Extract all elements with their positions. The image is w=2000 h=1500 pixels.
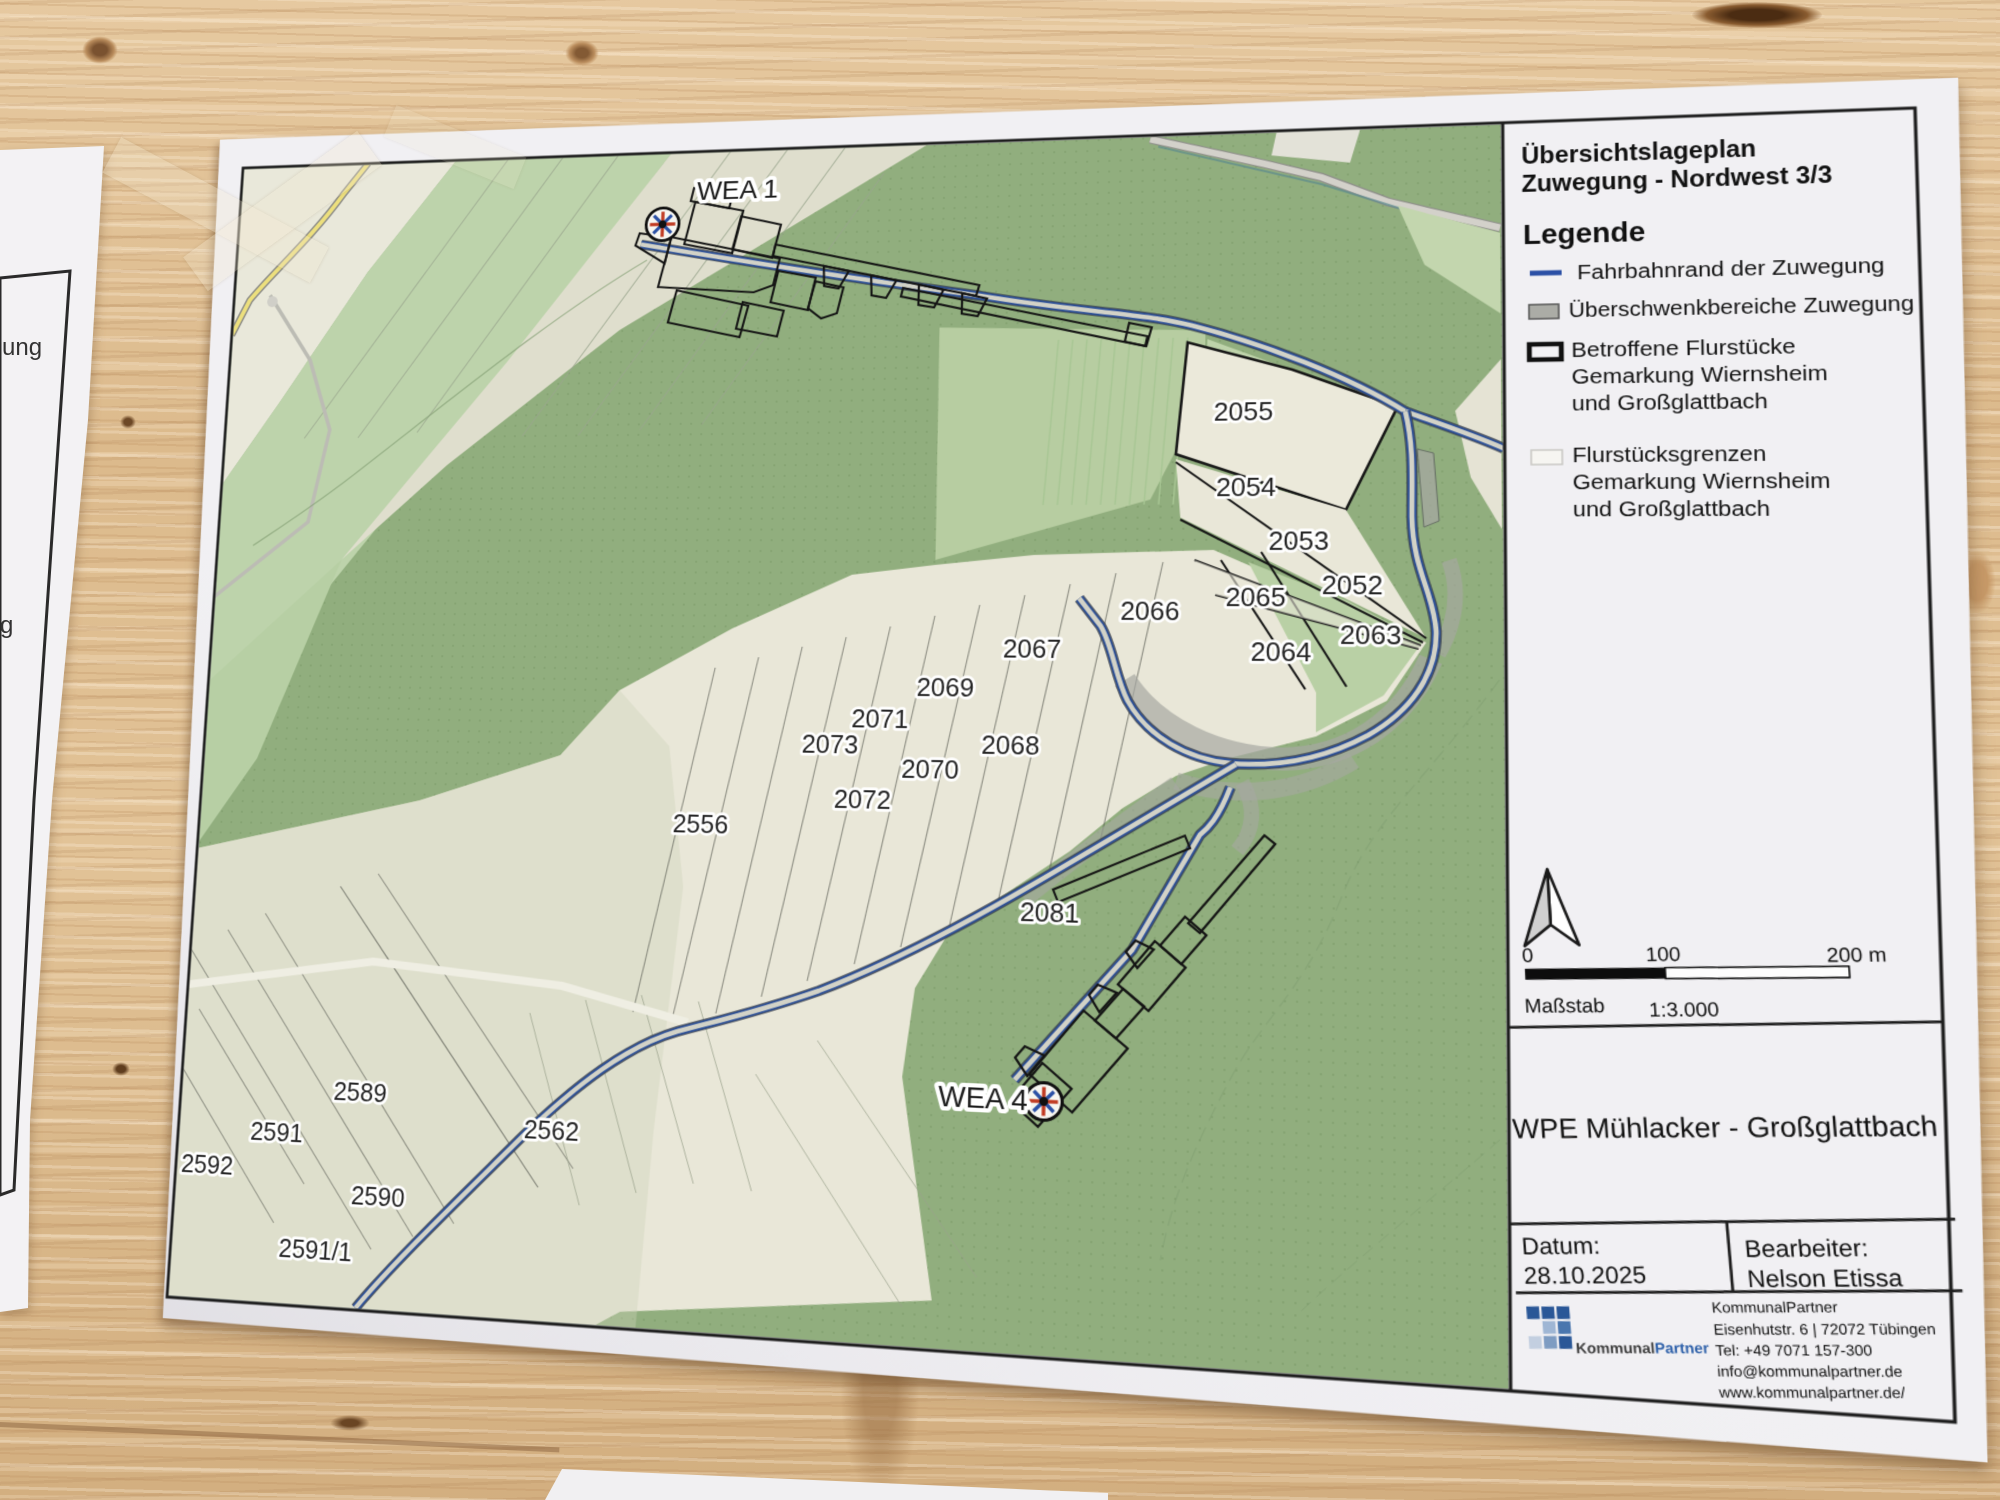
svg-text:KommunalPartner: KommunalPartner	[1711, 1300, 1839, 1317]
svg-text:Eisenhutstr. 6 | 72072 Tübinge: Eisenhutstr. 6 | 72072 Tübingen	[1713, 1322, 1937, 1339]
svg-text:2556: 2556	[672, 809, 729, 839]
svg-text:2071: 2071	[851, 704, 909, 734]
svg-text:2053: 2053	[1268, 526, 1329, 556]
svg-text:2591/1: 2591/1	[278, 1233, 353, 1267]
svg-text:2065: 2065	[1225, 582, 1286, 612]
svg-text:2052: 2052	[1322, 570, 1383, 600]
svg-text:0: 0	[1521, 946, 1534, 968]
svg-text:2562: 2562	[523, 1114, 580, 1147]
svg-text:ung: ung	[2, 334, 42, 361]
svg-text:2069: 2069	[916, 673, 974, 703]
svg-text:2591: 2591	[249, 1116, 303, 1148]
svg-text:WPE Mühlacker - Großglattbach: WPE Mühlacker - Großglattbach	[1511, 1109, 1939, 1144]
svg-text:2070: 2070	[901, 754, 959, 785]
svg-text:2589: 2589	[333, 1076, 388, 1108]
svg-text:2072: 2072	[833, 784, 891, 815]
svg-text:2055: 2055	[1213, 397, 1273, 427]
svg-text:2054: 2054	[1216, 472, 1276, 502]
svg-text:2590: 2590	[350, 1181, 405, 1214]
svg-text:2073: 2073	[801, 729, 859, 759]
svg-text:Gemarkung Wiernsheim: Gemarkung Wiernsheim	[1572, 468, 1830, 494]
svg-text:Datum:: Datum:	[1521, 1233, 1601, 1260]
svg-text:2066: 2066	[1120, 596, 1180, 626]
svg-text:Betroffene Flurstücke: Betroffene Flurstücke	[1571, 334, 1796, 362]
svg-text:2081: 2081	[1020, 897, 1080, 929]
svg-text:Nelson Etissa: Nelson Etissa	[1746, 1265, 1905, 1293]
svg-text:Flurstücksgrenzen: Flurstücksgrenzen	[1572, 441, 1766, 467]
svg-text:1:3.000: 1:3.000	[1648, 999, 1720, 1021]
svg-text:g: g	[0, 612, 13, 639]
svg-text:info@kommunalpartner.de: info@kommunalpartner.de	[1717, 1364, 1904, 1381]
svg-text:Tel: +49 7071 157-300: Tel: +49 7071 157-300	[1715, 1343, 1873, 1359]
svg-text:2592: 2592	[180, 1149, 234, 1181]
svg-text:2068: 2068	[981, 730, 1040, 761]
svg-text:und Großglattbach: und Großglattbach	[1573, 496, 1771, 521]
svg-text:28.10.2025: 28.10.2025	[1523, 1262, 1647, 1289]
svg-text:Legende: Legende	[1523, 216, 1646, 250]
svg-text:200 m: 200 m	[1826, 945, 1887, 968]
svg-text:2064: 2064	[1250, 637, 1311, 667]
svg-text:KommunalPartner: KommunalPartner	[1575, 1341, 1710, 1357]
svg-text:WEA 4: WEA 4	[938, 1080, 1028, 1117]
svg-text:Maßstab: Maßstab	[1524, 996, 1605, 1018]
svg-text:2063: 2063	[1340, 620, 1402, 651]
svg-text:2067: 2067	[1003, 634, 1062, 664]
svg-text:www.kommunalpartner.de/: www.kommunalpartner.de/	[1717, 1385, 1907, 1402]
svg-text:Gemarkung Wiernsheim: Gemarkung Wiernsheim	[1571, 361, 1828, 389]
svg-text:und Großglattbach: und Großglattbach	[1572, 389, 1769, 416]
svg-text:100: 100	[1645, 944, 1682, 966]
svg-text:WEA 1: WEA 1	[696, 175, 778, 207]
svg-text:Bearbeiter:: Bearbeiter:	[1743, 1235, 1869, 1263]
